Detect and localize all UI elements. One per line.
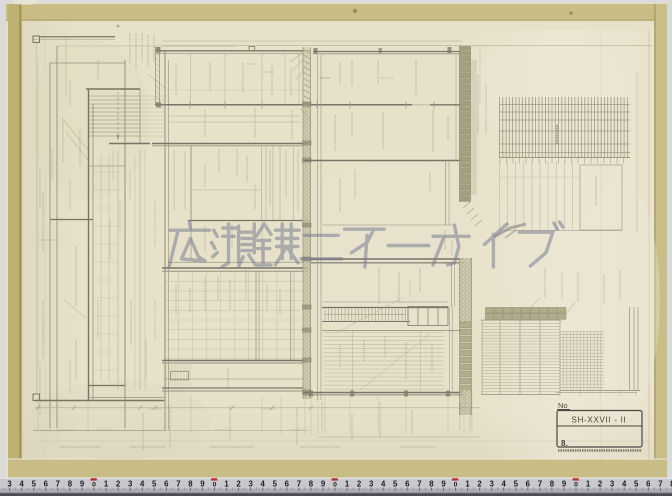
svg-text:0: 0: [454, 482, 458, 489]
svg-text:4: 4: [140, 479, 145, 488]
svg-text:5: 5: [273, 479, 278, 488]
svg-text:9: 9: [441, 479, 446, 488]
svg-text:3: 3: [369, 479, 374, 488]
svg-text:8: 8: [429, 479, 434, 488]
svg-text:7: 7: [538, 479, 542, 488]
svg-text:5: 5: [634, 479, 639, 488]
svg-text:6: 6: [646, 479, 651, 488]
svg-text:6: 6: [44, 479, 49, 488]
svg-text:3: 3: [7, 479, 12, 488]
svg-text:3: 3: [249, 479, 254, 488]
svg-text:7: 7: [56, 479, 60, 488]
svg-text:9: 9: [321, 479, 326, 488]
svg-text:2: 2: [116, 479, 121, 488]
svg-text:7: 7: [176, 479, 180, 488]
svg-text:SH-XXVII - II: SH-XXVII - II: [572, 416, 627, 425]
svg-text:5: 5: [514, 479, 519, 488]
svg-text:8.: 8.: [561, 439, 568, 448]
svg-text:9: 9: [200, 479, 205, 488]
svg-text:1: 1: [104, 479, 109, 488]
svg-text:0: 0: [333, 482, 337, 489]
svg-text:1: 1: [586, 479, 591, 488]
svg-text:2: 2: [598, 479, 603, 488]
svg-text:7: 7: [658, 479, 662, 488]
svg-text:3: 3: [128, 479, 133, 488]
svg-text:6: 6: [526, 479, 531, 488]
svg-text:4: 4: [622, 479, 627, 488]
svg-text:6: 6: [164, 479, 169, 488]
svg-text:8: 8: [68, 479, 73, 488]
svg-text:8: 8: [550, 479, 555, 488]
svg-text:No: No: [558, 401, 568, 410]
svg-text:4: 4: [381, 479, 386, 488]
svg-text:2: 2: [236, 479, 241, 488]
svg-text:7: 7: [297, 479, 301, 488]
svg-text:6: 6: [405, 479, 410, 488]
svg-text:1: 1: [345, 479, 350, 488]
svg-text:4: 4: [502, 479, 507, 488]
svg-text:9: 9: [562, 479, 567, 488]
svg-text:3: 3: [610, 479, 615, 488]
svg-text:5: 5: [393, 479, 398, 488]
svg-text:5: 5: [32, 479, 37, 488]
svg-text:0: 0: [92, 482, 96, 489]
svg-text:2: 2: [357, 479, 362, 488]
svg-text:8: 8: [188, 479, 193, 488]
svg-text:9: 9: [80, 479, 85, 488]
svg-text:8: 8: [309, 479, 314, 488]
svg-text:4: 4: [261, 479, 266, 488]
svg-text:0: 0: [213, 482, 217, 489]
svg-text:2: 2: [477, 479, 482, 488]
svg-text:7: 7: [417, 479, 421, 488]
svg-text:5: 5: [152, 479, 157, 488]
svg-text:0: 0: [574, 482, 578, 489]
svg-text:4: 4: [20, 479, 25, 488]
svg-text:6: 6: [285, 479, 290, 488]
svg-text:3: 3: [490, 479, 495, 488]
svg-text:1: 1: [224, 479, 229, 488]
svg-text:1: 1: [465, 479, 470, 488]
